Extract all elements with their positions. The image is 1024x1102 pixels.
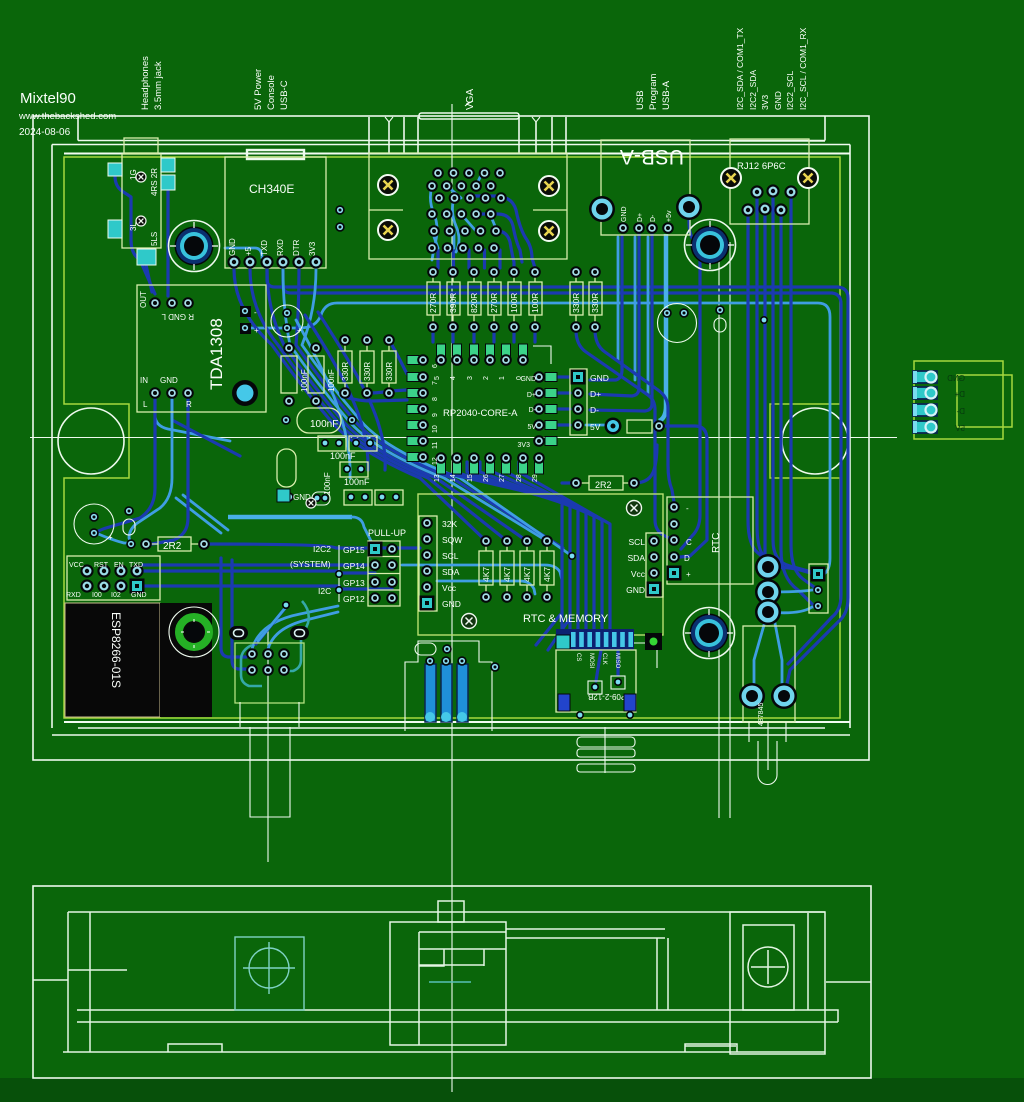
svg-text:4K7: 4K7: [502, 567, 512, 582]
svg-text:Program: Program: [648, 73, 659, 110]
svg-text:15: 15: [467, 474, 474, 482]
svg-text:R GND L: R GND L: [161, 312, 194, 321]
svg-text:L: L: [143, 400, 148, 409]
svg-text:CH340E: CH340E: [249, 182, 294, 196]
svg-text:+: +: [254, 326, 259, 335]
svg-text:DTR: DTR: [292, 239, 301, 256]
svg-text:MOSI: MOSI: [588, 653, 594, 669]
svg-text:CLK: CLK: [601, 653, 607, 665]
svg-text:D-: D-: [590, 405, 599, 415]
svg-text:1G: 1G: [129, 169, 138, 180]
svg-text:5LS: 5LS: [150, 232, 159, 246]
svg-text:RXD: RXD: [276, 239, 285, 256]
svg-text:487845: 487845: [758, 703, 765, 726]
svg-text:I2C2_SCL: I2C2_SCL: [785, 71, 795, 110]
svg-text:SDA: SDA: [628, 553, 646, 563]
svg-text:OUT: OUT: [139, 291, 148, 308]
svg-text:SCL: SCL: [628, 537, 645, 547]
svg-text:+5: +5: [244, 246, 253, 256]
svg-text:GP15: GP15: [343, 545, 365, 555]
svg-text:5V Power: 5V Power: [253, 69, 264, 110]
svg-text:USB-A: USB-A: [661, 80, 672, 110]
svg-text:I2C2: I2C2: [313, 544, 331, 554]
svg-text:26: 26: [483, 474, 490, 482]
svg-text:GND: GND: [626, 585, 645, 595]
svg-text:4RS 2R: 4RS 2R: [150, 168, 159, 196]
svg-text:+5v: +5v: [666, 210, 673, 222]
svg-text:5V: 5V: [955, 424, 965, 433]
svg-text:100nF: 100nF: [344, 477, 370, 487]
svg-text:330R: 330R: [590, 293, 600, 313]
svg-text:D+: D+: [527, 392, 536, 399]
svg-text:D+: D+: [637, 213, 644, 222]
svg-text:USB: USB: [635, 90, 646, 110]
svg-text:2R2: 2R2: [163, 541, 182, 552]
svg-text:27: 27: [499, 474, 506, 482]
svg-text:USB-C: USB-C: [279, 80, 290, 110]
svg-text:100nF: 100nF: [330, 451, 356, 461]
svg-text:9: 9: [432, 413, 439, 417]
svg-text:D: D: [684, 554, 690, 563]
svg-text:5V: 5V: [527, 424, 536, 431]
svg-text:www.thebackshed.com: www.thebackshed.com: [18, 111, 116, 122]
svg-text:100R: 100R: [530, 293, 540, 313]
svg-text:I00: I00: [92, 592, 102, 599]
svg-text:GP12: GP12: [343, 594, 365, 604]
svg-text:11: 11: [432, 442, 439, 449]
svg-text:I02: I02: [111, 592, 121, 599]
svg-text:Vcc: Vcc: [631, 569, 646, 579]
svg-text:USB-A: USB-A: [620, 145, 684, 168]
svg-text:TXD: TXD: [129, 562, 143, 569]
svg-text:2024-08-06: 2024-08-06: [19, 127, 71, 138]
svg-text:RTC: RTC: [711, 533, 722, 553]
svg-text:-: -: [686, 504, 689, 513]
svg-text:RTC & MEMORY: RTC & MEMORY: [523, 613, 609, 625]
svg-text:IN: IN: [140, 376, 148, 385]
svg-text:100nF: 100nF: [327, 369, 336, 392]
svg-text:GP13: GP13: [343, 578, 365, 588]
svg-text:390R: 390R: [448, 293, 458, 313]
svg-text:-: -: [254, 308, 257, 317]
svg-text:2: 2: [483, 376, 490, 380]
svg-text:3.5mm jack: 3.5mm jack: [153, 61, 164, 110]
svg-text:GP14: GP14: [343, 561, 365, 571]
svg-text:Console: Console: [266, 75, 277, 110]
svg-text:+: +: [108, 533, 113, 542]
svg-text:12: 12: [432, 457, 439, 465]
svg-text:3V3: 3V3: [518, 442, 531, 449]
svg-text:D+: D+: [590, 389, 601, 399]
svg-text:100nF: 100nF: [310, 419, 338, 430]
svg-text:3: 3: [467, 376, 474, 380]
svg-text:GND: GND: [947, 374, 965, 383]
svg-text:+: +: [686, 570, 691, 579]
svg-text:RJ12 6P6C: RJ12 6P6C: [737, 161, 786, 172]
svg-text:ESP8266-01S: ESP8266-01S: [109, 612, 123, 688]
svg-text:Headphones: Headphones: [140, 56, 151, 110]
svg-text:32K: 32K: [442, 519, 457, 529]
svg-text:I2C_SDA / COM1_TX: I2C_SDA / COM1_TX: [735, 27, 745, 110]
svg-text:5: 5: [434, 376, 441, 380]
svg-text:10: 10: [432, 425, 439, 433]
svg-text:4K7: 4K7: [542, 567, 552, 582]
svg-text:TXD: TXD: [260, 240, 269, 256]
svg-text:RXD: RXD: [66, 592, 81, 599]
svg-text:14: 14: [450, 474, 457, 482]
svg-text:29: 29: [532, 474, 539, 482]
svg-text:GND: GND: [160, 376, 178, 385]
svg-text:D+: D+: [954, 390, 965, 399]
svg-text:I2C: I2C: [318, 586, 331, 596]
svg-text:Mixtel90: Mixtel90: [20, 90, 76, 107]
svg-text:GND: GND: [773, 91, 783, 110]
svg-text:SDA: SDA: [442, 567, 460, 577]
svg-text:270R: 270R: [489, 293, 499, 313]
svg-text:1: 1: [499, 376, 506, 380]
svg-text:PULL-UP: PULL-UP: [368, 528, 406, 538]
svg-text:CS: CS: [575, 653, 581, 661]
svg-text:6: 6: [432, 364, 439, 368]
svg-text:28: 28: [516, 474, 523, 482]
svg-text:4: 4: [450, 376, 457, 380]
svg-text:GND: GND: [131, 592, 147, 599]
svg-text:4K7: 4K7: [522, 567, 532, 582]
svg-text:8: 8: [432, 397, 439, 401]
svg-text:I2C_SCL / COM1_RX: I2C_SCL / COM1_RX: [798, 27, 808, 110]
svg-text:3V3: 3V3: [308, 241, 317, 256]
svg-text:GND: GND: [590, 373, 609, 383]
svg-text:330R: 330R: [385, 362, 394, 381]
svg-text:330R: 330R: [341, 362, 350, 381]
svg-text:VCC: VCC: [69, 562, 84, 569]
svg-text:RST: RST: [94, 562, 109, 569]
svg-text:GND: GND: [621, 206, 628, 222]
svg-text:GND: GND: [520, 376, 536, 383]
svg-text:+: +: [297, 326, 302, 335]
svg-text:100R: 100R: [509, 293, 519, 313]
svg-text:RP2040-CORE-A: RP2040-CORE-A: [443, 408, 518, 419]
svg-text:GND: GND: [442, 599, 461, 609]
svg-text:I2C2_SDA: I2C2_SDA: [748, 70, 758, 110]
svg-text:3L: 3L: [129, 222, 138, 231]
svg-text:D-: D-: [956, 407, 965, 416]
svg-text:270R: 270R: [428, 293, 438, 313]
svg-text:D-: D-: [529, 407, 537, 414]
svg-text:GND: GND: [228, 238, 237, 256]
svg-text:2R2: 2R2: [595, 480, 612, 490]
svg-text:Vcc: Vcc: [442, 583, 457, 593]
svg-text:MISO: MISO: [614, 653, 620, 669]
svg-text:(SYSTEM): (SYSTEM): [290, 559, 331, 569]
svg-text:EN: EN: [114, 562, 124, 569]
svg-text:R: R: [186, 400, 192, 409]
svg-text:4K7: 4K7: [481, 567, 491, 582]
svg-text:13: 13: [434, 474, 441, 482]
svg-text:D-: D-: [650, 214, 657, 222]
svg-text:C: C: [686, 538, 692, 547]
svg-text:330R: 330R: [571, 293, 581, 313]
svg-text:SCL: SCL: [442, 551, 459, 561]
svg-text:3V3: 3V3: [760, 95, 770, 110]
svg-text:820R: 820R: [469, 293, 479, 313]
svg-text:7: 7: [432, 381, 439, 385]
svg-text:TDA1308: TDA1308: [207, 318, 226, 390]
svg-text:SQW: SQW: [442, 535, 462, 545]
svg-text:5V: 5V: [590, 422, 601, 432]
svg-text:VGA: VGA: [465, 89, 476, 110]
svg-text:330R: 330R: [363, 362, 372, 381]
